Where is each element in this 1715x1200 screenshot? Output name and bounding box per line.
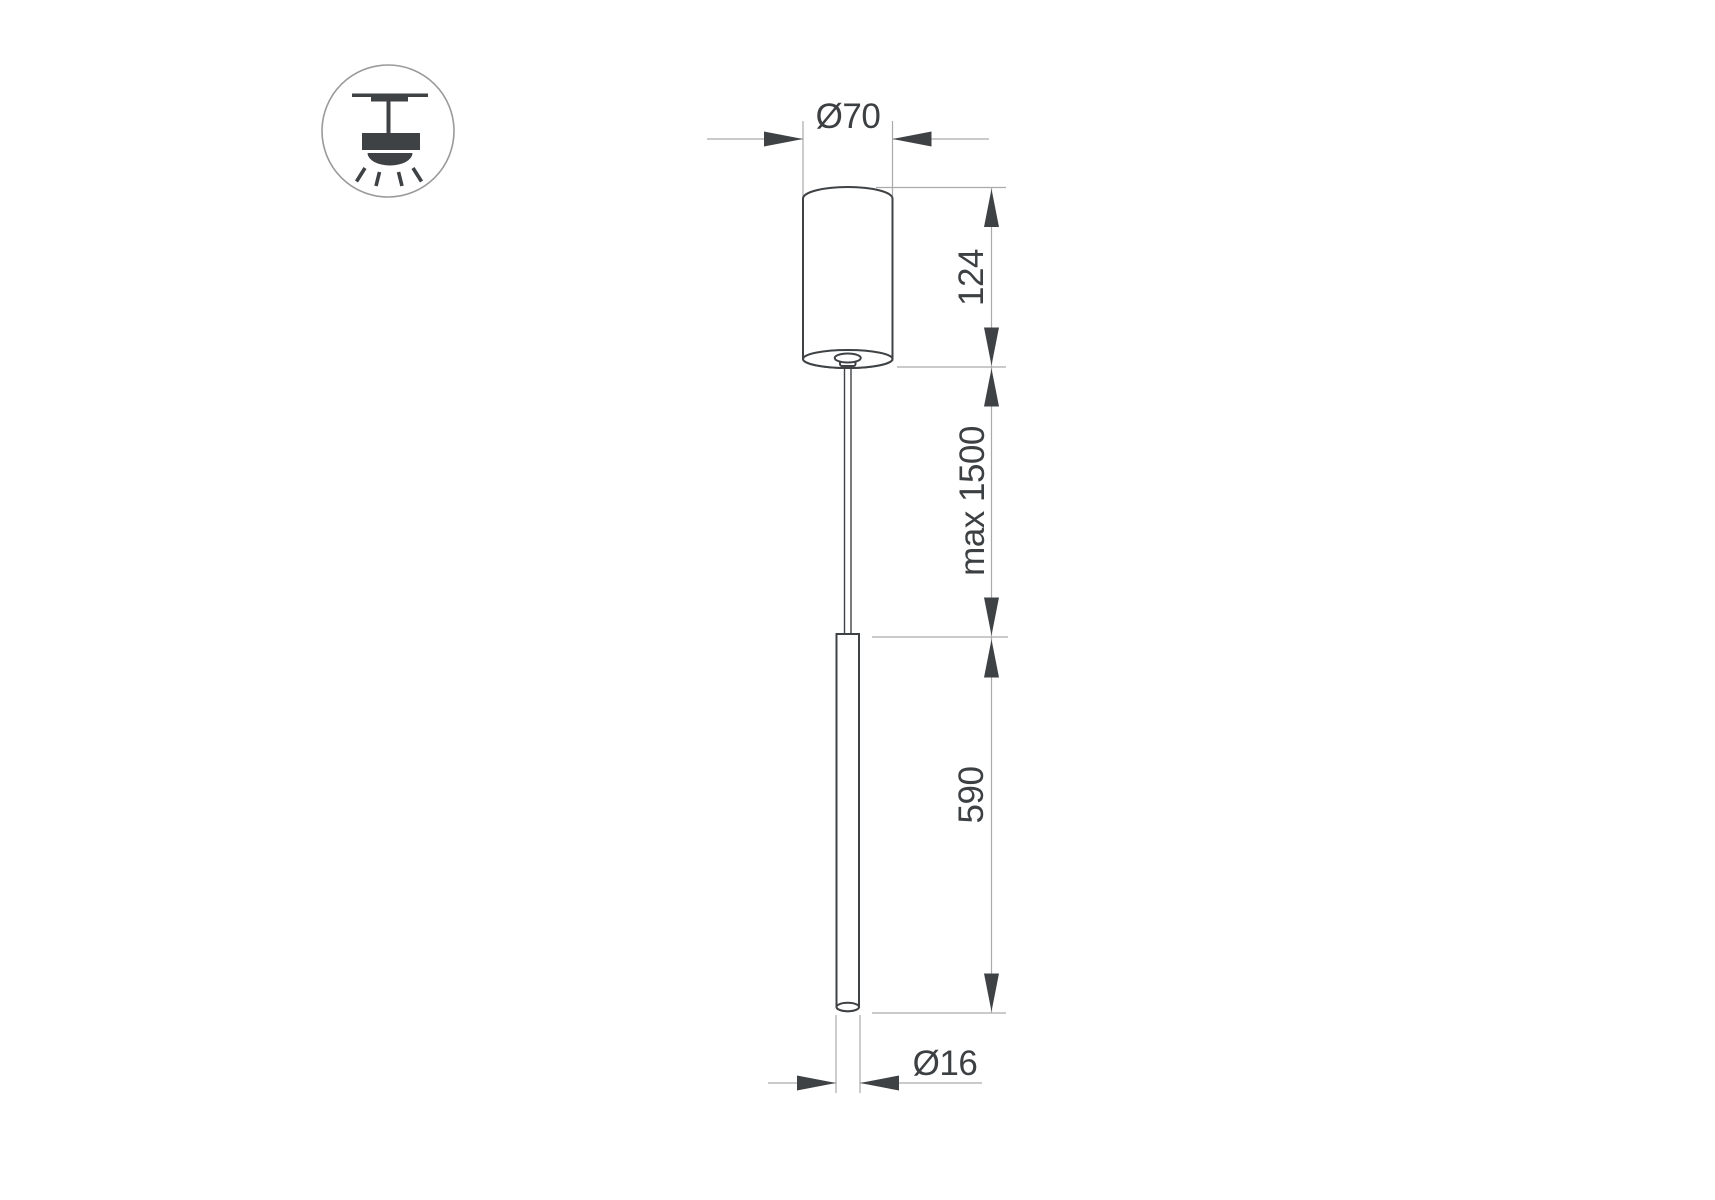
mount-plate [371,97,408,102]
arrow-up-icon [984,369,999,407]
tube-diameter-label: Ø16 [913,1044,978,1083]
arrow-right-icon [764,132,803,147]
arrow-down-icon [984,328,999,366]
lamp-body [362,133,420,150]
arrow-left-icon [860,1076,899,1091]
suspension-max-length-label: max 1500 [953,426,992,576]
tube-length-label: 590 [952,767,991,824]
suspension-stem [387,101,391,134]
tube-light [837,634,860,1011]
canopy [803,187,893,368]
arrow-down-icon [984,598,999,636]
arrow-up-icon [984,640,999,678]
dimension-tube-diameter: Ø16 [768,1015,982,1093]
canopy-body [803,187,893,368]
drawing-canvas: Ø70 124 max 1500 590 Ø1 [0,0,1715,1200]
ceiling-line [352,94,428,98]
dimension-canopy-diameter: Ø70 [707,97,989,196]
technical-drawing: Ø70 124 max 1500 590 Ø1 [0,0,1715,1200]
arrow-left-icon [893,132,932,147]
suspension-wire [845,366,852,634]
arrow-down-icon [984,974,999,1012]
arrow-up-icon [984,189,999,227]
arrow-right-icon [797,1076,836,1091]
tube-body [837,634,860,1011]
wire-gland-cap [835,354,861,363]
tube-bottom-ellipse [837,1003,860,1011]
canopy-height-label: 124 [952,249,991,306]
pendant-ceiling-light-icon [322,65,454,197]
canopy-diameter-label: Ø70 [816,97,881,136]
